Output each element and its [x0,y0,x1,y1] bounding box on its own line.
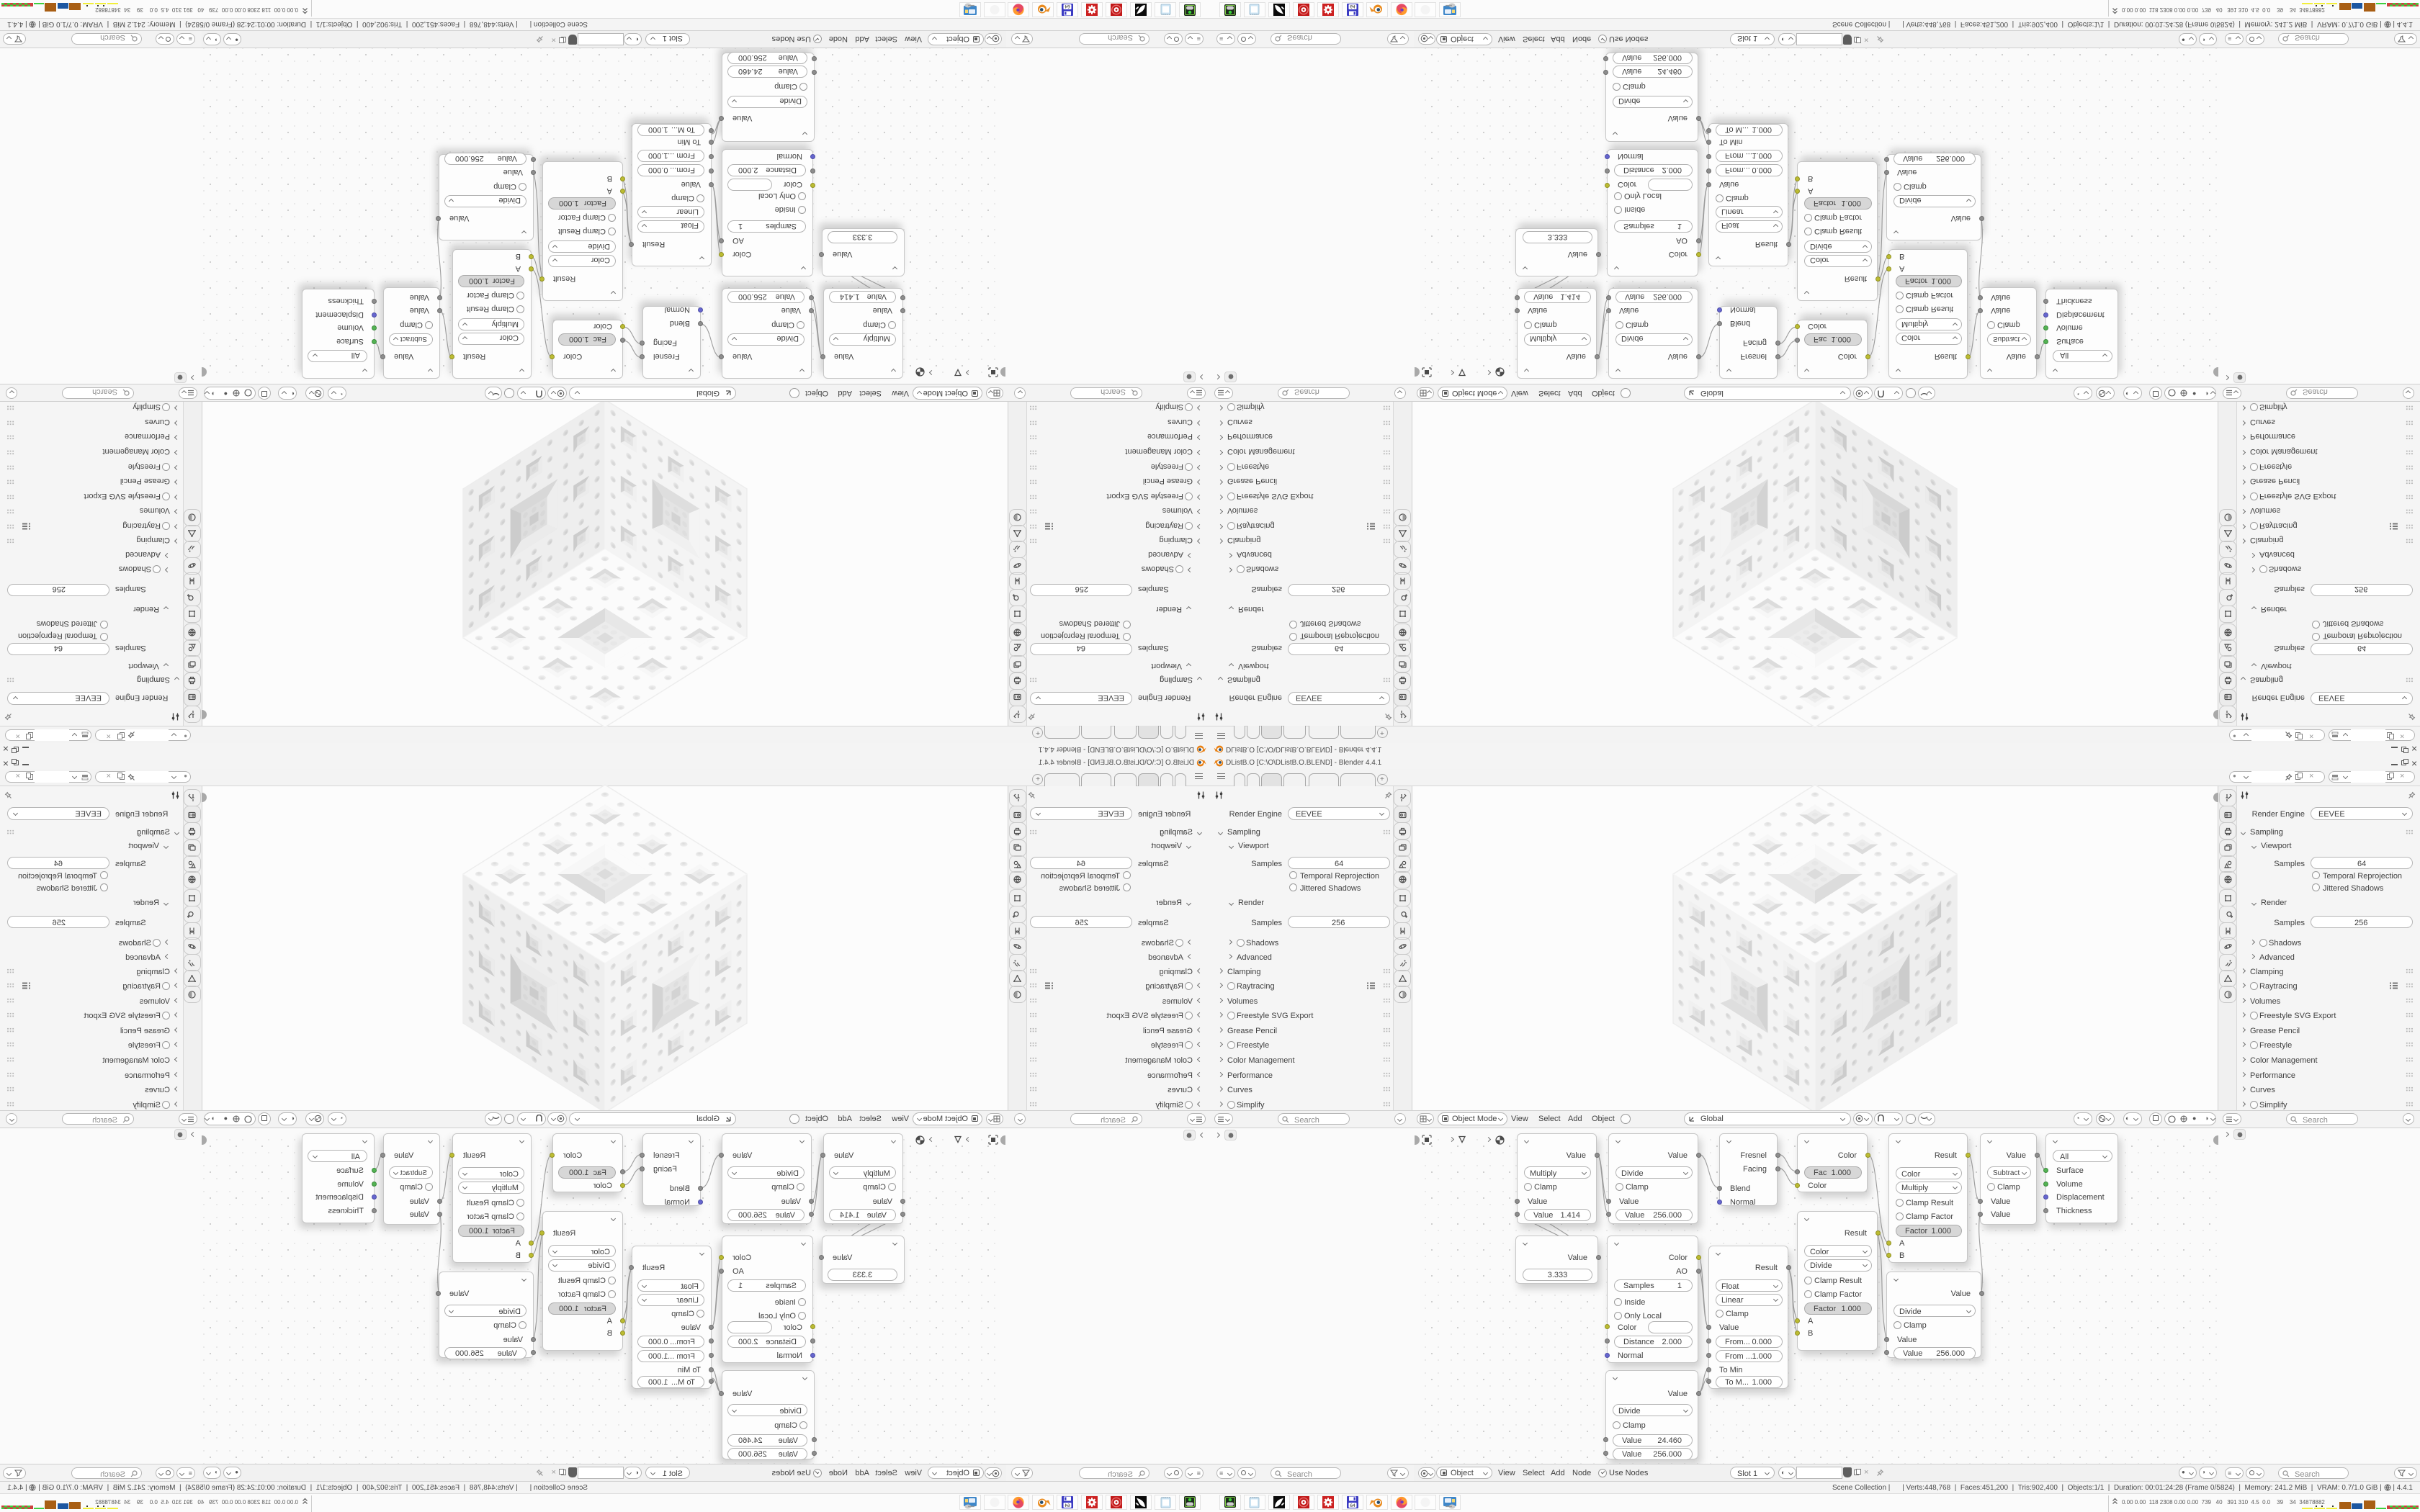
svg-text:64: 64 [1350,4,1355,9]
svg-text:64: 64 [1065,1503,1070,1508]
svg-text:64: 64 [1065,4,1070,9]
svg-text:64: 64 [1350,1503,1355,1508]
